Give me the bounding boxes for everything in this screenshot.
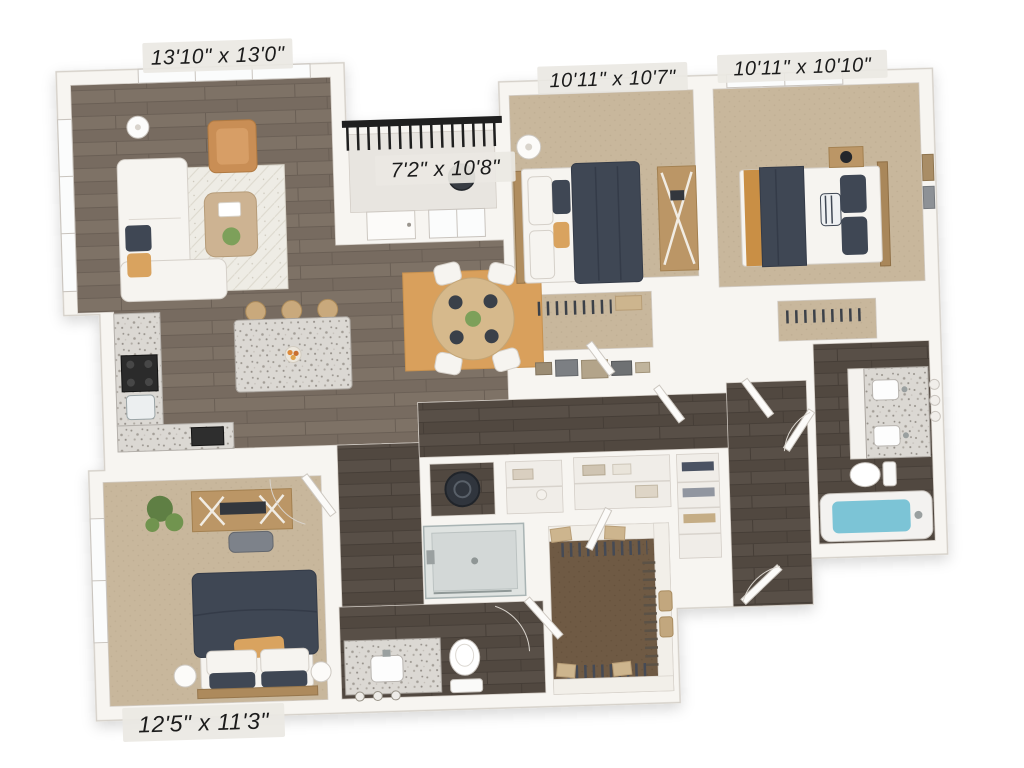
dimension-label-bedroom-2: 10'11" x 10'7": [537, 62, 688, 95]
dimension-label-primary-bedroom: 12'5" x 11'3": [122, 703, 285, 742]
desk-chair: [229, 531, 274, 552]
checkered-pillow: [552, 180, 571, 215]
checkered-pillow: [261, 670, 307, 687]
walk-in-shower: [424, 523, 526, 598]
bathtub: [820, 490, 933, 541]
floor-plan-rendering: 13'10" x 13'0" 10'11" x 10'7" 10'11" x 1…: [0, 0, 1024, 768]
navy-pillow: [840, 174, 867, 213]
hallway-floor-left: [337, 443, 424, 609]
bedroom-2-bed: [513, 162, 643, 286]
basket: [660, 617, 674, 637]
vanity-sink: [371, 655, 404, 682]
coffee-table: [204, 192, 258, 258]
storage-box: [604, 526, 625, 540]
dimension-label-living-room: 13'10" x 13'0": [142, 38, 293, 73]
floor-plan-stage: 13'10" x 13'0" 10'11" x 10'7" 10'11" x 1…: [0, 0, 1024, 768]
primary-nightstand: [311, 661, 332, 682]
kitchen-sink: [126, 395, 155, 420]
bedroom-3-closet-floor: [778, 298, 877, 341]
stove: [121, 355, 158, 392]
dimension-label-balcony: 7'2" x 10'8": [375, 151, 516, 185]
armchair: [208, 120, 258, 173]
navy-pillow: [841, 216, 868, 255]
vanity-sink: [872, 379, 899, 400]
dimension-text-primary-bedroom: 12'5" x 11'3": [138, 707, 271, 737]
balcony-door: [367, 211, 416, 240]
vanity-sink: [874, 425, 901, 446]
bedroom-3-bed: [739, 162, 890, 271]
towel-ring: [930, 411, 940, 421]
basket: [659, 591, 673, 611]
hallway-floor-center: [418, 393, 730, 458]
bathroom-2-toilet: [850, 462, 897, 487]
storage-box: [615, 296, 641, 311]
bedroom-2-dresser: [657, 166, 698, 271]
primary-bed: [192, 570, 320, 699]
bar-stool: [317, 299, 338, 320]
tub-water: [832, 499, 911, 533]
floor-lamp: [127, 116, 150, 139]
dimension-text-balcony: 7'2" x 10'8": [390, 156, 501, 182]
kitchen-island: [233, 299, 352, 393]
primary-vanity: [344, 638, 442, 701]
bar-stool: [281, 300, 302, 321]
orange-pillow: [553, 222, 570, 248]
fruit-bowl: [285, 346, 301, 362]
bedroom-3-nightstand: [829, 146, 864, 167]
storage-box: [550, 527, 572, 543]
bar-stool: [245, 301, 266, 322]
storage-box: [612, 661, 631, 676]
checkered-pillow: [209, 672, 255, 689]
dimension-label-bedroom-3: 10'11" x 10'10": [717, 50, 888, 83]
bedroom-2-nightstand: [516, 135, 541, 160]
dimension-text-living-room: 13'10" x 13'0": [150, 43, 286, 70]
primary-nightstand: [174, 665, 197, 688]
bathroom-2-vanity: [848, 366, 942, 459]
navy-blanket: [759, 166, 806, 266]
towel-ring: [930, 395, 940, 405]
dimension-text-bedroom-2: 10'11" x 10'7": [549, 66, 676, 92]
balcony-window: [429, 208, 486, 238]
orange-throw-pillow: [127, 253, 152, 278]
storage-box: [557, 663, 576, 678]
water-heater: [445, 472, 480, 507]
dimension-text-bedroom-3: 10'11" x 10'10": [733, 54, 872, 80]
shower-head: [426, 550, 434, 564]
countertop-appliance: [191, 427, 224, 446]
navy-throw-pillow: [125, 225, 152, 252]
towel-ring: [929, 379, 939, 389]
